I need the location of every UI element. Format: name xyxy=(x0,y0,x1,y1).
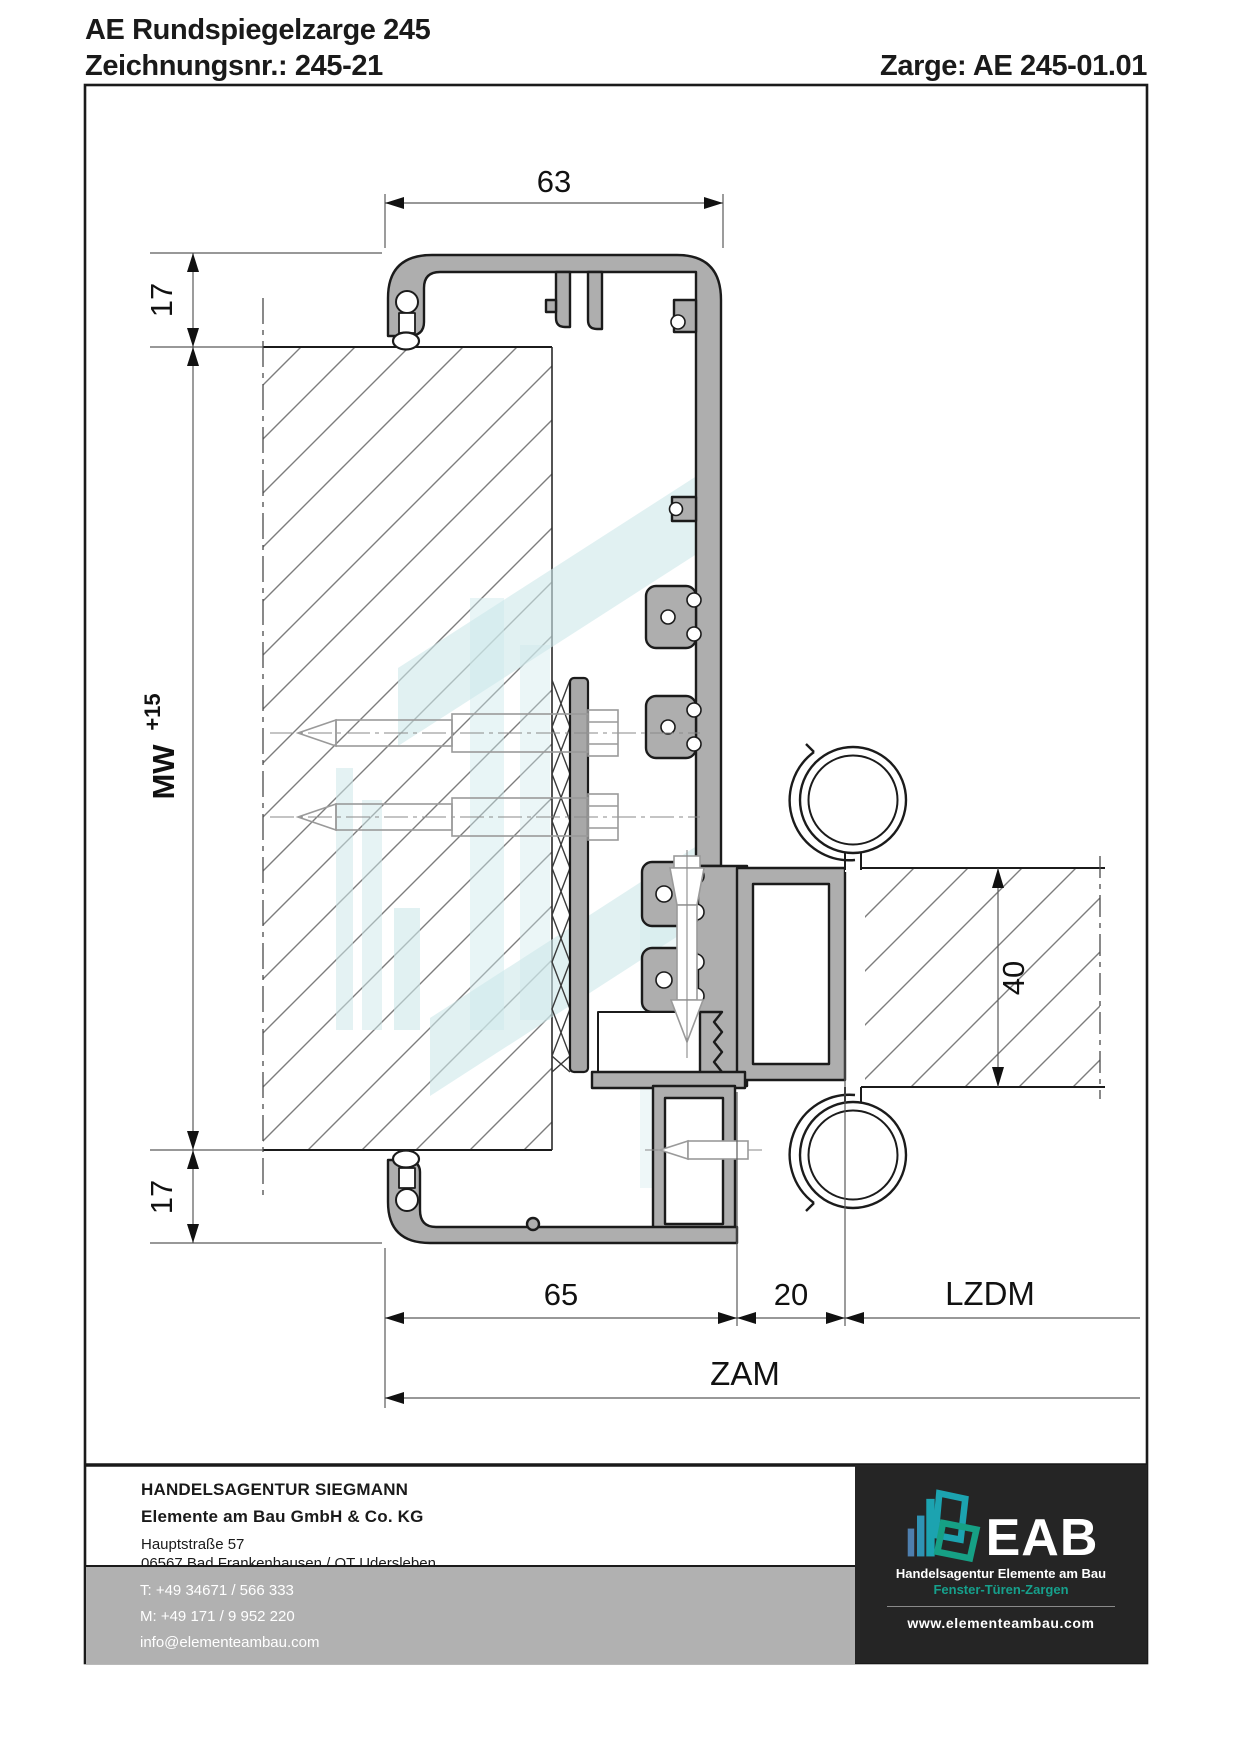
top-fin-hook xyxy=(546,300,556,312)
clip-notch xyxy=(687,737,701,751)
partition-hatch xyxy=(865,868,1100,1087)
dim-65-label: 65 xyxy=(544,1277,578,1312)
profile-nub xyxy=(527,1218,539,1230)
clip-notch xyxy=(661,720,675,734)
dim-17-bottom-label: 17 xyxy=(144,1180,179,1214)
top-gasket xyxy=(393,333,419,350)
dim-zam: ZAM xyxy=(385,1355,1140,1404)
dim-20-label: 20 xyxy=(774,1277,808,1312)
logo-bar-teal-blue xyxy=(917,1516,924,1557)
footer-mobile: M: +49 171 / 9 952 220 xyxy=(140,1604,855,1630)
clip-notch xyxy=(656,972,672,988)
dim-mw-label: MW xyxy=(146,744,181,800)
footer-company: Elemente am Bau GmbH & Co. KG xyxy=(141,1507,436,1527)
eab-website[interactable]: www.elementeambau.com xyxy=(855,1615,1147,1631)
eab-subtitle: Handelsagentur Elemente am Bau xyxy=(855,1566,1147,1581)
footer-email[interactable]: info@elementeambau.com xyxy=(140,1630,855,1656)
round-tube-top-inner xyxy=(809,756,898,845)
connector-cavity xyxy=(753,884,829,1064)
round-tube-bottom-inner xyxy=(809,1111,898,1200)
dim-40-label: 40 xyxy=(996,961,1031,995)
bottom-box-cavity xyxy=(665,1098,723,1224)
clip-notch xyxy=(687,627,701,641)
eab-divider xyxy=(887,1606,1115,1607)
footer-phone: T: +49 34671 / 566 333 xyxy=(140,1578,855,1604)
partition-wall xyxy=(861,856,1105,1099)
clip-notch xyxy=(687,703,701,717)
dim-17-top-label: 17 xyxy=(144,283,179,317)
bottom-gasket xyxy=(393,1151,419,1168)
web-hook-notch xyxy=(671,315,685,329)
clip-arc-tip xyxy=(806,744,814,752)
eab-logo-row: EAB xyxy=(855,1483,1147,1563)
masonry-wall xyxy=(263,298,552,1198)
clip-notch xyxy=(687,593,701,607)
anchor-shaft xyxy=(688,1141,748,1159)
mirror-plate xyxy=(570,678,588,1072)
dim-zam-label: ZAM xyxy=(710,1355,780,1392)
dim-mw-tolerance: +15 xyxy=(140,693,165,730)
watermark-bar xyxy=(394,908,420,1030)
eab-logo-box: EAB Handelsagentur Elemente am Bau Fenst… xyxy=(855,1465,1147,1663)
top-profile-cavity xyxy=(396,291,418,313)
watermark-bar xyxy=(336,768,353,1030)
clip-notch xyxy=(656,886,672,902)
footer-agency: HANDELSAGENTUR SIEGMANN xyxy=(141,1480,436,1500)
gasket-screw xyxy=(399,313,415,333)
dim-63-label: 63 xyxy=(537,164,571,199)
footer-address-block: HANDELSAGENTUR SIEGMANN Elemente am Bau … xyxy=(141,1480,436,1572)
top-fin xyxy=(588,272,602,329)
watermark-bar xyxy=(362,800,382,1030)
gasket-screw xyxy=(399,1168,415,1188)
dim-63: 63 xyxy=(385,164,723,248)
clip-notch xyxy=(661,610,675,624)
dim-lzdm-label: LZDM xyxy=(945,1275,1035,1312)
footer-contact-band: T: +49 34671 / 566 333 M: +49 171 / 9 95… xyxy=(86,1565,855,1664)
dim-mw: MW +15 xyxy=(140,347,199,1150)
logo-bar-blue xyxy=(907,1529,914,1557)
eab-tagline: Fenster-Türen-Zargen xyxy=(855,1582,1147,1597)
bottom-profile-cavity xyxy=(396,1189,418,1211)
watermark-bar xyxy=(520,645,550,1020)
watermark-bar xyxy=(470,598,504,1030)
eab-abbr: EAB xyxy=(986,1515,1099,1563)
web-hook-notch xyxy=(670,503,683,516)
footer-street: Hauptstraße 57 xyxy=(141,1536,436,1553)
page: { "header": { "title": "AE Rundspiegelza… xyxy=(0,0,1240,1754)
eab-building-icon xyxy=(904,1483,982,1563)
top-fin xyxy=(556,272,570,327)
clip-arc-tip xyxy=(806,1203,814,1211)
